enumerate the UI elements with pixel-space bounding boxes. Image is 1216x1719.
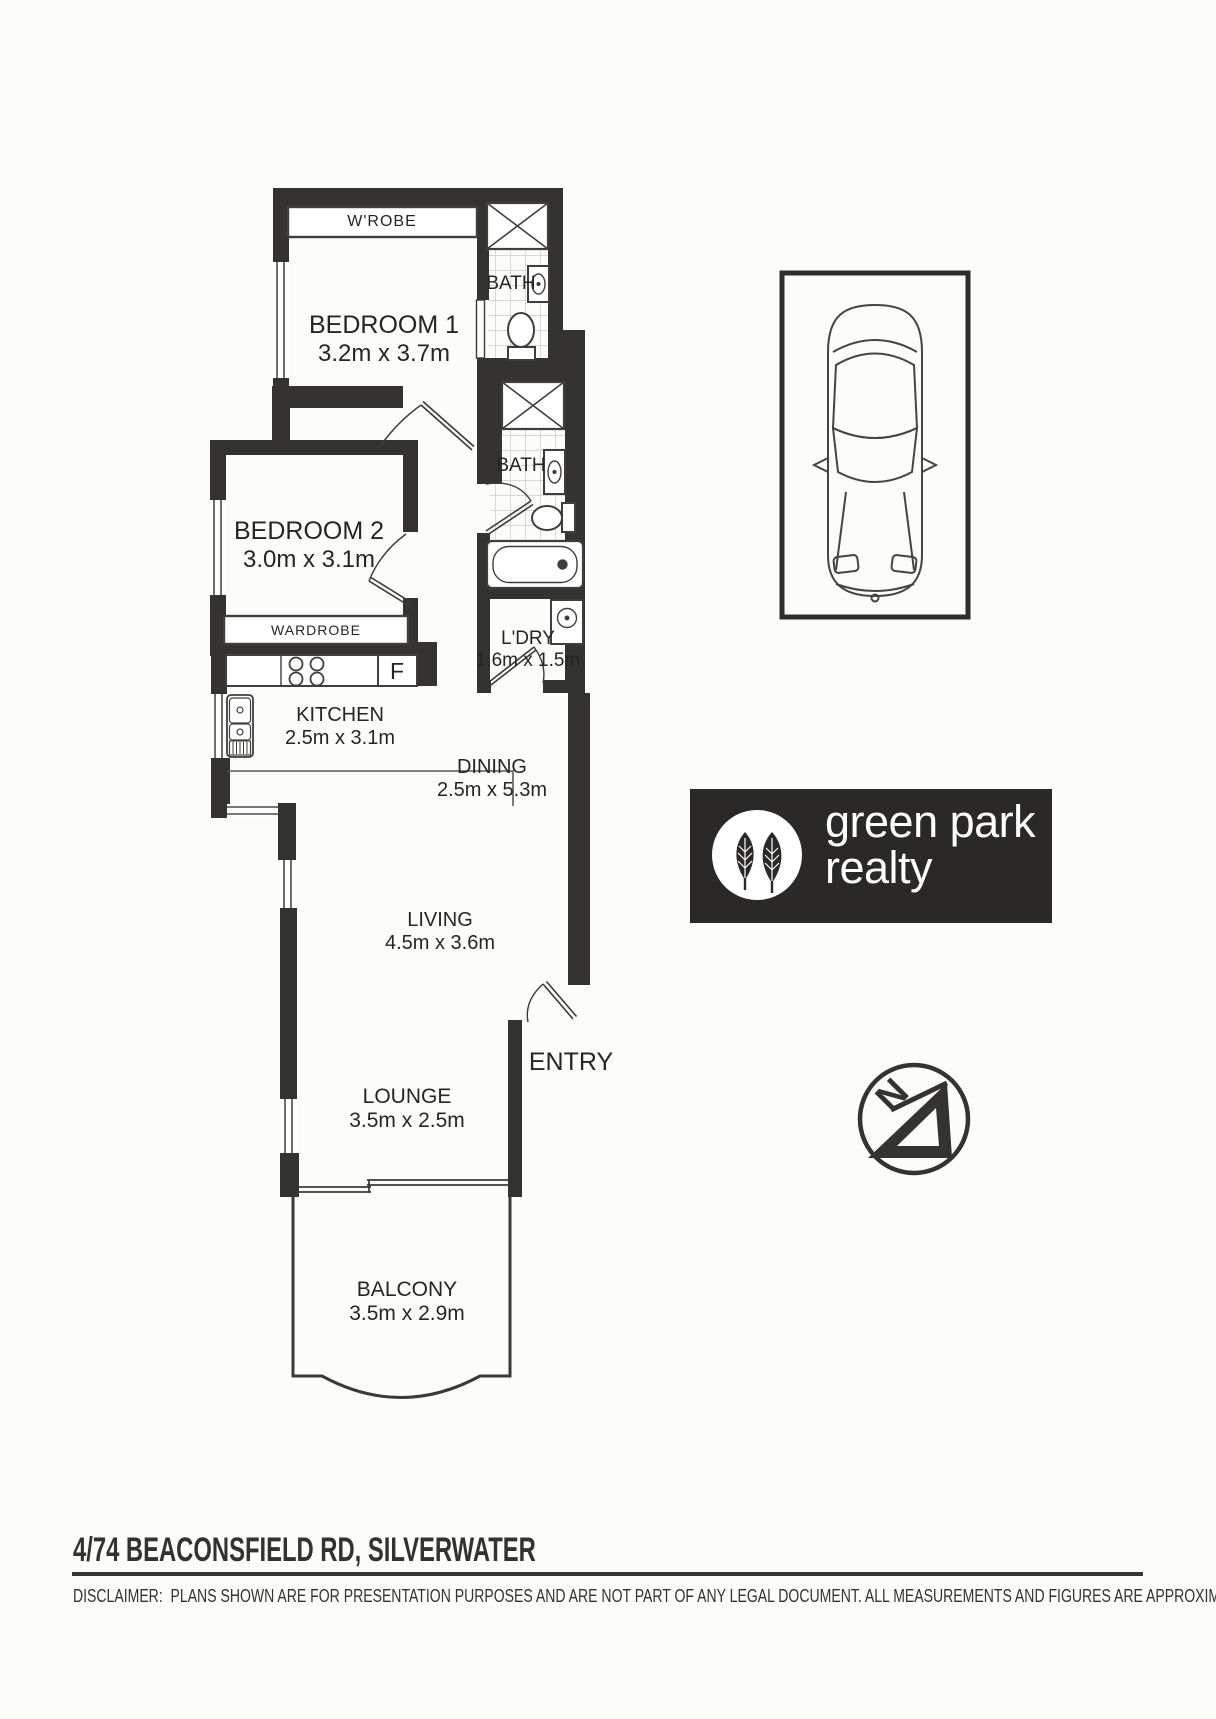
room-label-laundry: L'DRY 1.6m x 1.5m (476, 628, 581, 672)
bathtub-icon (487, 541, 583, 588)
room-label-entry: ENTRY (529, 1048, 613, 1077)
room-label-wrobe: W'ROBE (347, 213, 417, 232)
room-label-bath2: BATH (496, 455, 545, 477)
room-label-bedroom2: BEDROOM 2 3.0m x 3.1m (234, 517, 384, 574)
agency-name-line2: realty (825, 845, 1035, 891)
agency-logo: green park realty (690, 789, 1052, 923)
room-label-lounge: LOUNGE 3.5m x 2.5m (349, 1085, 465, 1134)
floorplan-page: N W'ROBE BEDROOM 1 3.2m x 3.7m BATH BEDR… (0, 0, 1216, 1719)
car-space (782, 273, 968, 617)
room-label-wardrobe: WARDROBE (271, 622, 361, 638)
sliding-door (299, 1180, 509, 1192)
room-label-balcony: BALCONY 3.5m x 2.9m (349, 1278, 465, 1327)
kitchen-sink-icon (227, 695, 253, 757)
car-icon (814, 305, 936, 602)
footer-divider (72, 1572, 1143, 1576)
shower-icon (487, 203, 548, 249)
basin-icon (544, 450, 565, 494)
room-label-dining: DINING 2.5m x 5.3m (437, 756, 547, 802)
agency-name-line1: green park (825, 799, 1035, 845)
toilet-icon (532, 503, 575, 532)
logo-leaves-icon (712, 810, 802, 900)
property-address: 4/74 BEACONSFIELD RD, SILVERWATER (73, 1531, 536, 1570)
north-label: N (868, 1071, 917, 1120)
agency-name: green park realty (825, 799, 1035, 891)
north-compass-icon: N (860, 1065, 968, 1173)
room-label-living: LIVING 4.5m x 3.6m (385, 909, 495, 955)
room-label-bath1: BATH (486, 273, 535, 295)
shower-icon (502, 382, 564, 429)
disclaimer-text: DISCLAIMER: PLANS SHOWN ARE FOR PRESENTA… (73, 1586, 1216, 1607)
toilet-icon (508, 313, 535, 360)
room-label-kitchen: KITCHEN 2.5m x 3.1m (285, 704, 395, 750)
room-label-bedroom1: BEDROOM 1 3.2m x 3.7m (309, 311, 459, 368)
fridge-label: F (390, 658, 404, 685)
